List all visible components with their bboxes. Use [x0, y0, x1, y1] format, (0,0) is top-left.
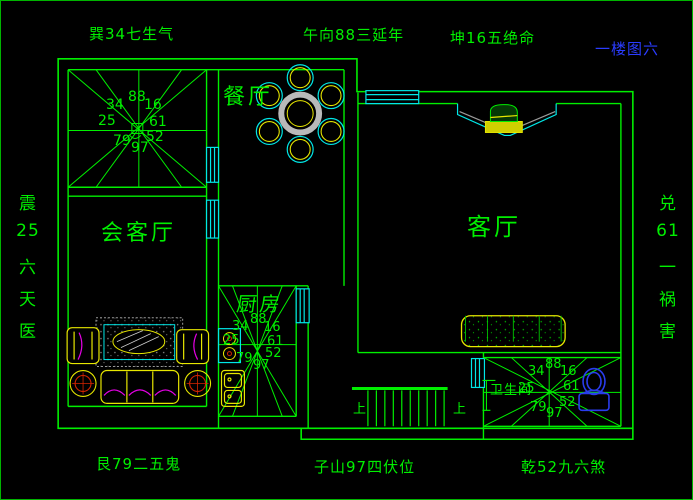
- sheet-title: 一楼图六: [595, 38, 659, 59]
- star-number-nw: 34: [232, 320, 249, 333]
- living-sofa: [462, 316, 566, 347]
- star-number-ne: 16: [264, 321, 281, 334]
- compass-label-top-center: 午向88三延年: [303, 24, 404, 45]
- star-number-w: 25: [223, 334, 240, 347]
- stairs-up-label-right: 上: [453, 398, 466, 417]
- star-number-se: 52: [559, 396, 576, 409]
- side-table-right: [185, 371, 211, 397]
- windows: [207, 91, 485, 388]
- star-number-e: 61: [149, 116, 167, 129]
- star-number-nw: 34: [528, 365, 545, 378]
- stairs-up-label-left: 上: [353, 398, 366, 417]
- sofa-three-seat: [101, 371, 179, 404]
- kitchen-sink: [222, 371, 245, 407]
- armchair-left: [67, 328, 99, 364]
- star-number-nw: 34: [106, 99, 124, 112]
- compass-label-left-vertical: 震 25 六 天 医: [11, 189, 45, 349]
- window-bathroom: [471, 359, 484, 388]
- star-number-ne: 16: [560, 365, 577, 378]
- star-number-sw: 79: [530, 401, 547, 414]
- star-number-e: 61: [563, 380, 580, 393]
- star-number-se: 52: [265, 347, 282, 360]
- compass-label-bottom-center: 子山97四伏位: [314, 456, 415, 477]
- room-label-reception: 会客厅: [101, 215, 176, 247]
- room-label-dining: 餐厅: [223, 79, 273, 111]
- television: [485, 105, 522, 133]
- star-number-sw: 79: [113, 135, 131, 148]
- window-living-top: [366, 91, 419, 104]
- star-number-w: 25: [518, 382, 535, 395]
- compass-label-bottom-left: 艮79二五鬼: [96, 453, 181, 474]
- reception-furniture: [67, 318, 210, 404]
- star-number-se: 52: [146, 131, 164, 144]
- coffee-table: [113, 330, 165, 354]
- star-number-sw: 79: [236, 352, 253, 365]
- star-number-ne: 16: [144, 99, 162, 112]
- side-table-left: [70, 371, 96, 397]
- compass-label-top-left: 巽34七生气: [89, 23, 174, 44]
- armchair-right: [177, 330, 209, 364]
- compass-label-right-vertical: 兑 61 一 祸 害: [651, 189, 685, 349]
- star-number-w: 25: [98, 115, 116, 128]
- room-label-living: 客厅: [467, 207, 521, 242]
- window-star-room: [207, 147, 219, 182]
- window-kitchen: [296, 289, 309, 323]
- toilet: [579, 369, 609, 411]
- floorplan-drawing: [1, 1, 692, 499]
- staircase: [352, 388, 448, 426]
- compass-label-top-right: 坤16五绝命: [450, 27, 535, 48]
- star-chart-northwest-room: [68, 70, 206, 188]
- floorplan-canvas: 巽34七生气 午向88三延年 坤16五绝命 一楼图六 艮79二五鬼 子山97四伏…: [0, 0, 693, 500]
- compass-label-bottom-right: 乾52九六煞: [521, 456, 606, 477]
- window-reception: [207, 200, 219, 238]
